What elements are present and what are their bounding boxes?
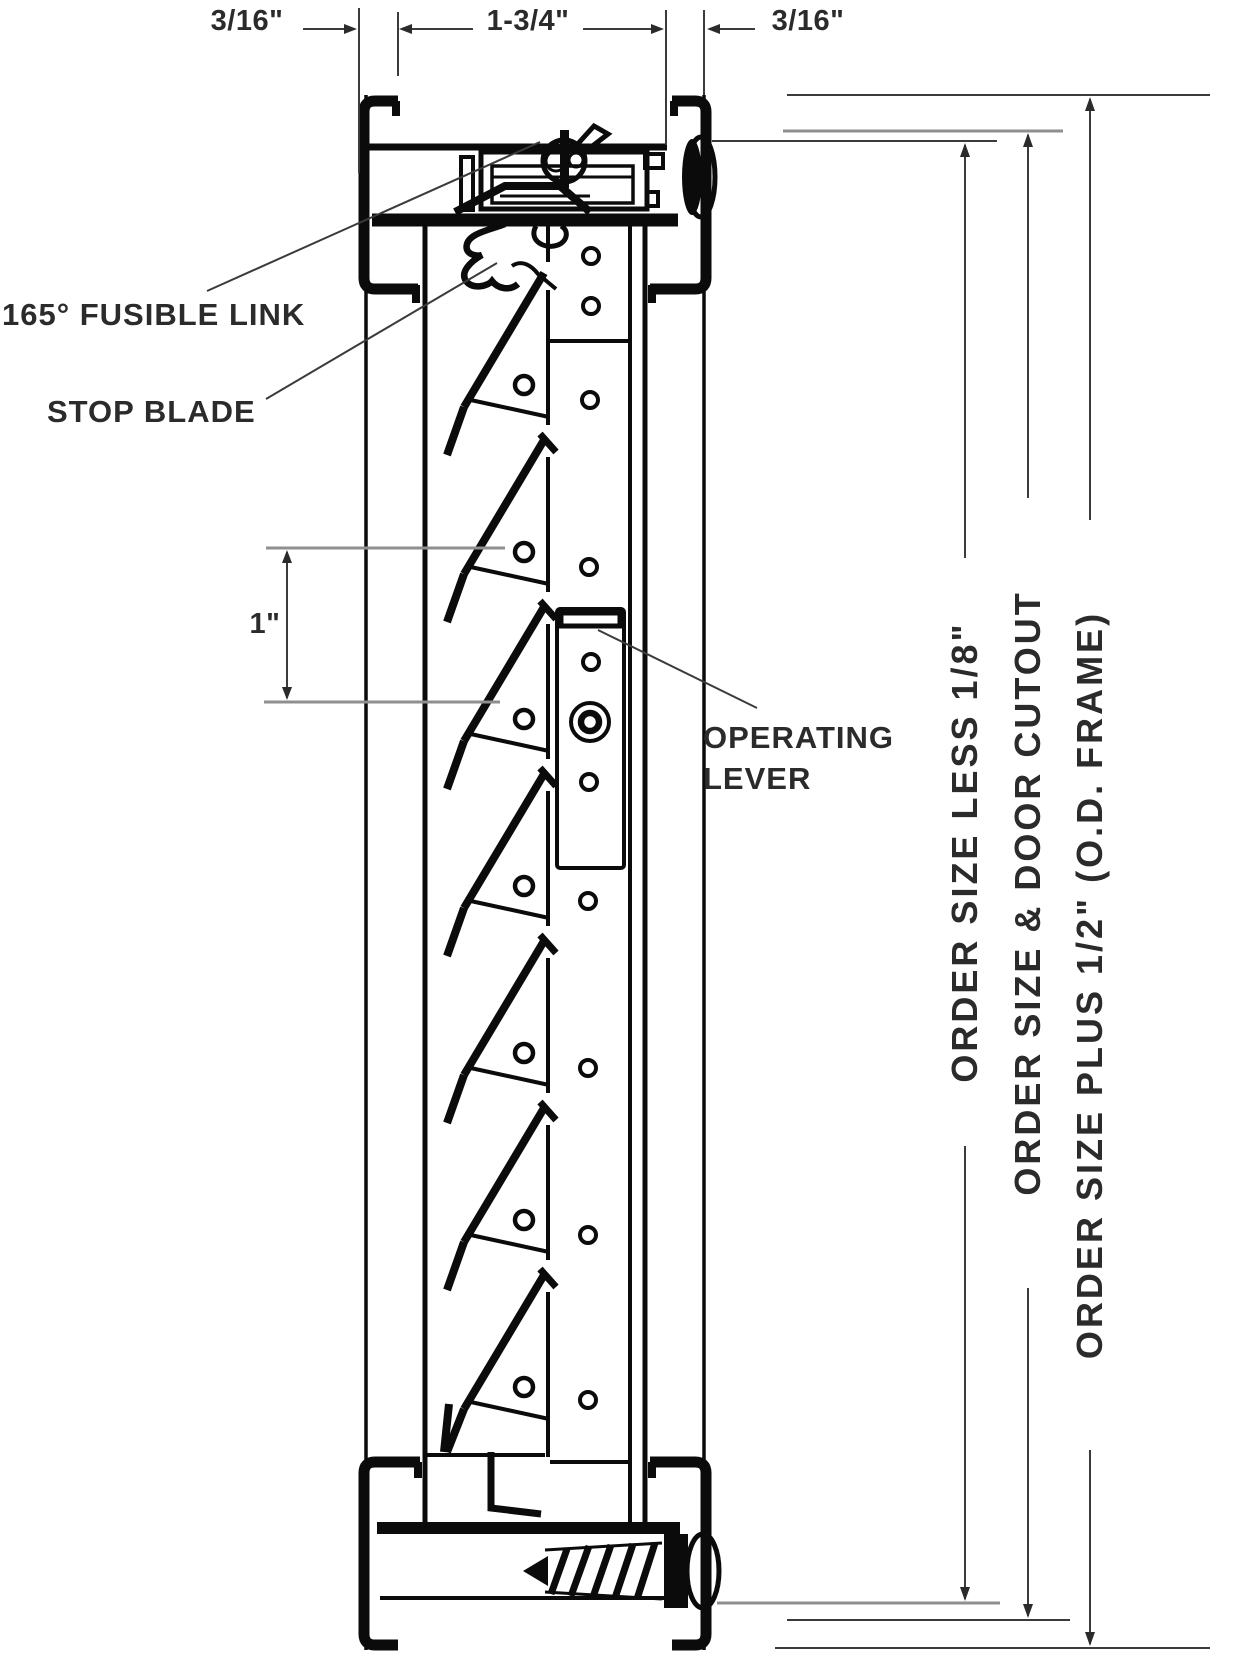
arrowhead (960, 1587, 970, 1601)
lever-pivot-outer (571, 703, 609, 741)
blade-rivet (515, 1044, 533, 1062)
top-left-channel (364, 101, 418, 289)
control-bar (550, 248, 630, 1462)
blade-bend (447, 1075, 464, 1123)
blade (447, 1269, 556, 1457)
lever-pivot-inner (581, 713, 599, 731)
lever-hole (583, 654, 599, 670)
arrowhead (1085, 1632, 1095, 1646)
louver-blades (444, 222, 556, 1457)
blade-rivet (515, 543, 533, 561)
blade (447, 601, 556, 789)
blade-bend (447, 1242, 464, 1290)
blade-rivet (515, 1378, 533, 1396)
bar-hole (583, 248, 599, 264)
blade-bend (447, 407, 464, 455)
screw-shank-top (545, 1543, 662, 1550)
bar-hole (580, 1060, 596, 1076)
blade-bend (447, 574, 464, 622)
hook-detail (534, 226, 566, 246)
screw-thread (571, 1546, 589, 1596)
bar-hole (580, 1227, 596, 1243)
bar-hole (580, 893, 596, 909)
operating-lever-plate (557, 609, 624, 868)
bar-hole (583, 298, 599, 314)
dim-label-top-right: 3/16" (772, 5, 845, 37)
arrowhead (344, 24, 357, 34)
arrowhead (1023, 133, 1033, 147)
blade-rivet (515, 376, 533, 394)
screw-thread (615, 1544, 633, 1598)
blade-bend (447, 741, 464, 789)
dim-label-top-left: 3/16" (211, 5, 284, 37)
blade-back (466, 1401, 549, 1419)
dim-label-blade-spacing: 1" (250, 608, 281, 640)
label-fusible-link: 165° FUSIBLE LINK (2, 297, 305, 332)
screw-tip (523, 1556, 548, 1586)
label-stop-blade: STOP BLADE (47, 394, 256, 429)
blade (447, 1102, 556, 1290)
label-operating-lever-line2: LEVER (703, 761, 811, 796)
lever-hole (581, 774, 597, 790)
blade-rivet (515, 877, 533, 895)
screw-thread (637, 1543, 655, 1599)
damper-section-drawing: 3/16" 1-3/4" 3/16" 165° FUSIBLE LINK STO… (0, 0, 1251, 1653)
bar-hole (580, 1392, 596, 1408)
blade (447, 935, 556, 1123)
diagram-page: 3/16" 1-3/4" 3/16" 165° FUSIBLE LINK STO… (0, 0, 1251, 1653)
arrowhead (282, 687, 292, 700)
blade (447, 768, 556, 956)
blade-tail (444, 1404, 449, 1452)
screw-neck (664, 1534, 688, 1608)
blade-back (466, 733, 549, 751)
blade-rivet (515, 1211, 533, 1229)
bottom-left-channel (364, 1462, 420, 1645)
blade (447, 434, 556, 622)
blade-back (466, 900, 549, 918)
bar-hole (582, 392, 598, 408)
blade-back (466, 399, 549, 417)
track-foot (491, 1452, 541, 1514)
arrowhead (1085, 97, 1095, 111)
lever-plate (557, 609, 624, 868)
screw-thread (593, 1545, 611, 1597)
dim-label-top-middle: 1-3/4" (487, 5, 570, 37)
leader-operating-lever (598, 630, 757, 708)
arrowhead (1023, 1604, 1033, 1618)
label-operating-lever-line1: OPERATING (703, 720, 894, 755)
blade-rivet (515, 710, 533, 728)
arrowhead (399, 24, 412, 34)
blade-bend (447, 908, 464, 956)
lever-slot (561, 613, 620, 626)
bar-hole (581, 559, 597, 575)
arrowhead (651, 24, 664, 34)
arrowhead (960, 143, 970, 157)
arrowhead (707, 24, 720, 34)
screw-thread (551, 1549, 567, 1594)
vdim-label-order-size-less: ORDER SIZE LESS 1/8" (944, 621, 985, 1082)
blade (447, 273, 549, 455)
vdim-label-od-frame: ORDER SIZE PLUS 1/2" (O.D. FRAME) (1069, 611, 1110, 1359)
vdim-label-order-size-cutout: ORDER SIZE & DOOR CUTOUT (1007, 590, 1048, 1195)
arrowhead (282, 550, 292, 563)
link-tab (647, 192, 658, 206)
blade-back (466, 1234, 549, 1252)
blade-back (466, 1067, 549, 1085)
blade-back (466, 566, 549, 584)
